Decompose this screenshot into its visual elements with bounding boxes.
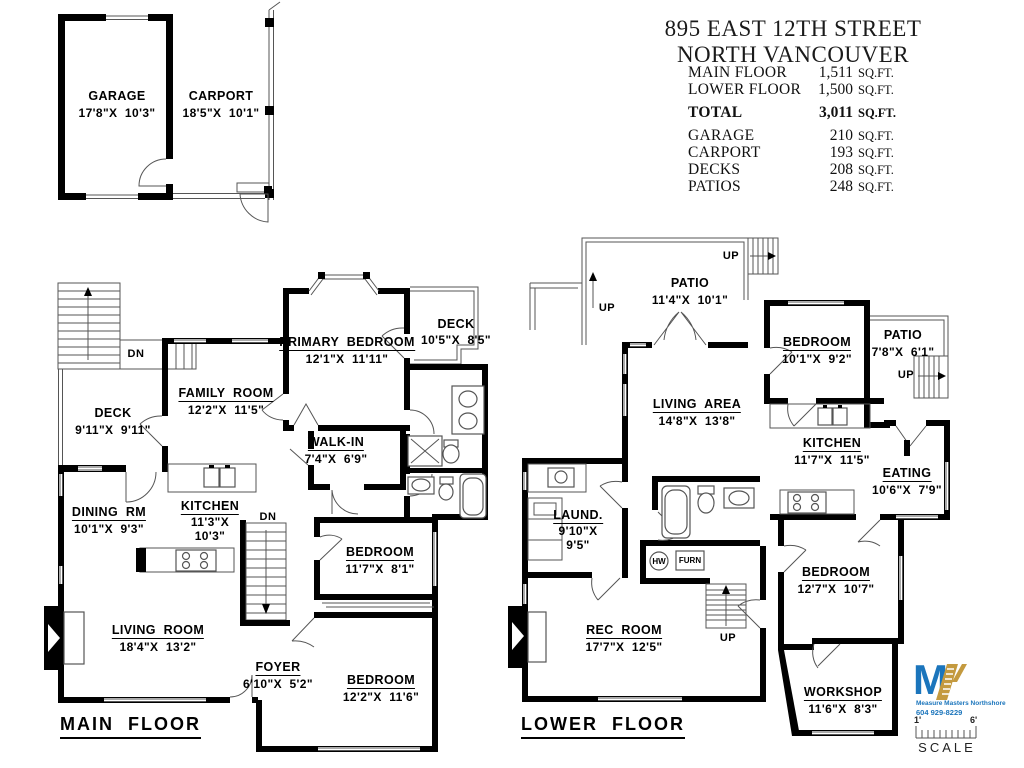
area-table: MAIN FLOOR 1,511 SQ.FT. LOWER FLOOR 1,50…	[688, 64, 906, 195]
stairs-dn-label-exterior: DN	[128, 349, 145, 360]
room-dims-primary-bedroom: 12'1"X 11'11"	[306, 353, 389, 365]
room-label-patio-right: PATIO	[884, 329, 922, 342]
stairs-up-label-left: UP	[599, 303, 615, 314]
room-dims-deck-left: 9'11"X 9'11"	[75, 424, 151, 436]
stairs-up-label-top-right: UP	[723, 251, 739, 262]
logo-phone: 604 929-8229	[916, 708, 962, 717]
room-label-foyer: FOYER	[255, 661, 300, 676]
table-row: CARPORT 193 SQ.FT.	[688, 144, 906, 161]
room-dims-kitchen-main-2: 10'3"	[195, 530, 226, 542]
room-dims-workshop: 11'6"X 8'3"	[808, 703, 877, 715]
scale-bar	[916, 726, 976, 738]
room-dims-family-room: 12'2"X 11'5"	[188, 404, 264, 416]
main-floor-deck-left	[59, 369, 63, 465]
room-dims-patio-top: 11'4"X 10'1"	[652, 294, 728, 306]
room-dims-garage: 17'8"X 10'3"	[78, 107, 155, 119]
stairs-up-label-interior: UP	[720, 633, 736, 644]
room-label-walk-in: WALK-IN	[308, 436, 364, 451]
room-label-kitchen-main: KITCHEN	[181, 500, 239, 515]
room-dims-living-area: 14'8"X 13'8"	[658, 415, 735, 427]
room-label-dining-rm: DINING RM	[72, 506, 146, 521]
lower-floor-patio-top	[530, 238, 778, 345]
room-label-workshop: WORKSHOP	[804, 686, 882, 701]
lower-floor-title: LOWER FLOOR	[521, 714, 685, 739]
room-dims-bedroom-top: 10'1"X 9'2"	[782, 353, 852, 365]
table-row: PATIOS 248 SQ.FT.	[688, 178, 906, 195]
room-label-carport: CARPORT	[189, 90, 254, 103]
room-dims-deck-upper: 10'5"X 8'5"	[421, 334, 491, 346]
room-label-primary-bedroom: PRIMARY BEDROOM	[279, 336, 415, 351]
room-dims-carport: 18'5"X 10'1"	[182, 107, 259, 119]
room-label-living-room: LIVING ROOM	[112, 624, 204, 639]
stairs-up-label-patio-right: UP	[898, 370, 914, 381]
room-dims-kitchen-lower: 11'7"X 11'5"	[794, 454, 870, 466]
room-label-family-room: FAMILY ROOM	[178, 387, 273, 402]
room-dims-rec-room: 17'7"X 12'5"	[585, 641, 662, 653]
table-row-total: TOTAL 3,011 SQ.FT.	[688, 104, 906, 121]
room-label-deck-left: DECK	[94, 407, 131, 420]
room-label-garage: GARAGE	[88, 90, 145, 103]
room-dims-walk-in: 7'4"X 6'9"	[305, 453, 368, 465]
furnace-label: FURN	[679, 557, 701, 565]
table-row: LOWER FLOOR 1,500 SQ.FT.	[688, 81, 906, 98]
room-label-deck-upper: DECK	[437, 318, 474, 331]
room-dims-kitchen-main-1: 11'3"X	[191, 516, 229, 528]
room-dims-laundry-2: 9'5"	[566, 539, 590, 551]
room-label-bedroom-top: BEDROOM	[783, 336, 851, 351]
room-label-laundry: LAUND.	[553, 509, 603, 524]
table-row: MAIN FLOOR 1,511 SQ.FT.	[688, 64, 906, 81]
scale-right-label: 6'	[970, 715, 977, 725]
plan-title-line1: 895 EAST 12TH STREET	[648, 16, 938, 42]
room-label-bedroom-mid: BEDROOM	[802, 566, 870, 581]
stairs-dn-label-interior: DN	[260, 512, 277, 523]
room-label-rec-room: REC ROOM	[586, 624, 662, 639]
room-label-kitchen-lower: KITCHEN	[803, 437, 861, 452]
room-dims-foyer: 6'10"X 5'2"	[243, 678, 313, 690]
plan-title: 895 EAST 12TH STREET NORTH VANCOUVER	[648, 16, 938, 69]
room-dims-bedroom-large: 12'2"X 11'6"	[343, 691, 419, 703]
room-label-bedroom-large: BEDROOM	[347, 674, 415, 689]
logo-company-name: Measure Masters Northshore	[916, 700, 1006, 707]
room-dims-patio-right: 7'8"X 6'1"	[872, 346, 935, 358]
room-dims-bedroom-mid: 12'7"X 10'7"	[797, 583, 874, 595]
scale-caption: SCALE	[918, 740, 976, 755]
table-row: GARAGE 210 SQ.FT.	[688, 127, 906, 144]
room-label-bedroom-small: BEDROOM	[346, 546, 414, 561]
room-dims-eating: 10'6"X 7'9"	[872, 484, 942, 496]
room-dims-bedroom-small: 11'7"X 8'1"	[345, 563, 414, 575]
room-label-patio-top: PATIO	[671, 277, 709, 290]
room-dims-living-room: 18'4"X 13'2"	[119, 641, 196, 653]
room-label-eating: EATING	[883, 467, 932, 482]
main-floor-bath-fixtures	[408, 386, 486, 518]
hot-water-tank-label: HW	[652, 558, 665, 566]
table-row: DECKS 208 SQ.FT.	[688, 161, 906, 178]
floorplan-page: 895 EAST 12TH STREET NORTH VANCOUVER MAI…	[0, 0, 1024, 768]
main-floor-title: MAIN FLOOR	[60, 714, 201, 739]
room-label-living-area: LIVING AREA	[653, 398, 741, 413]
room-dims-dining-rm: 10'1"X 9'3"	[74, 523, 144, 535]
room-dims-laundry-1: 9'10"X	[559, 525, 598, 537]
